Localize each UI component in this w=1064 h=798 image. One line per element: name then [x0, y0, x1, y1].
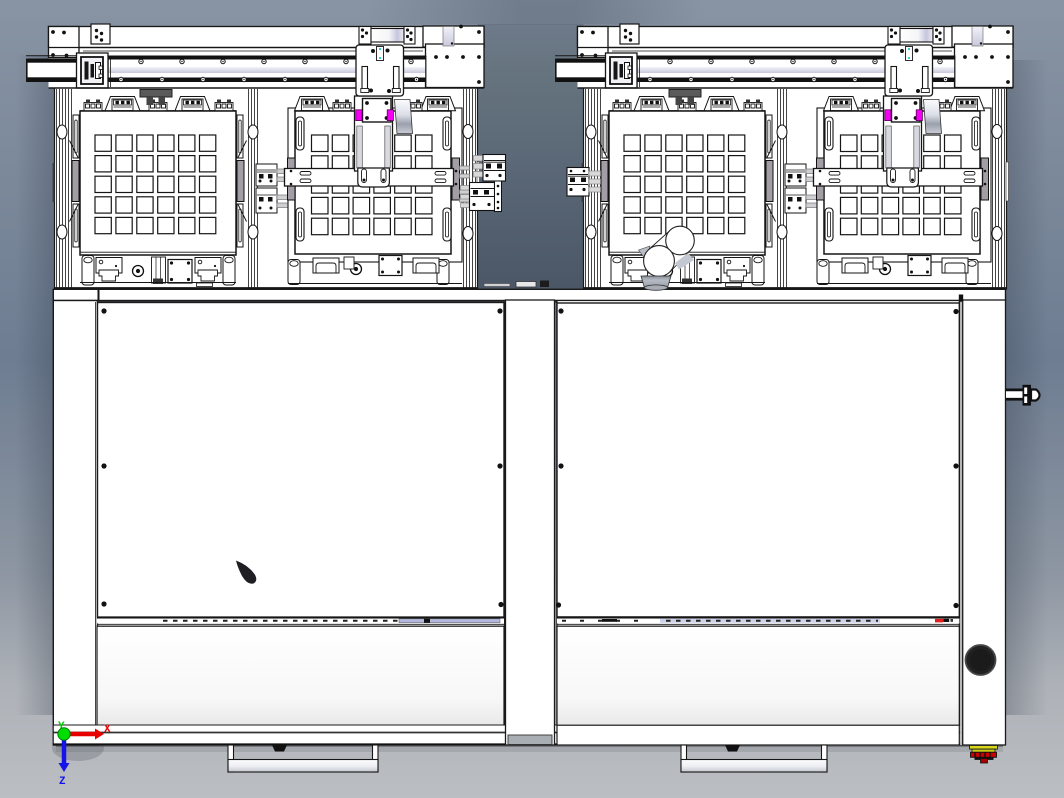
svg-text:X: X	[104, 724, 111, 736]
svg-text:Z: Z	[59, 776, 66, 788]
